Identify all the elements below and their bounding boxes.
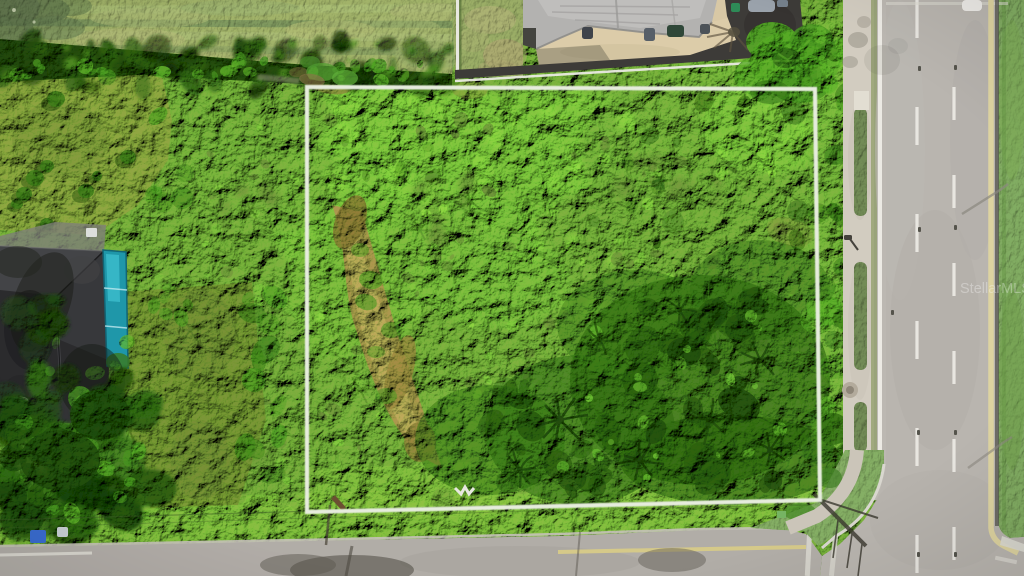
svg-text:StellarMLS: StellarMLS bbox=[960, 281, 1024, 297]
